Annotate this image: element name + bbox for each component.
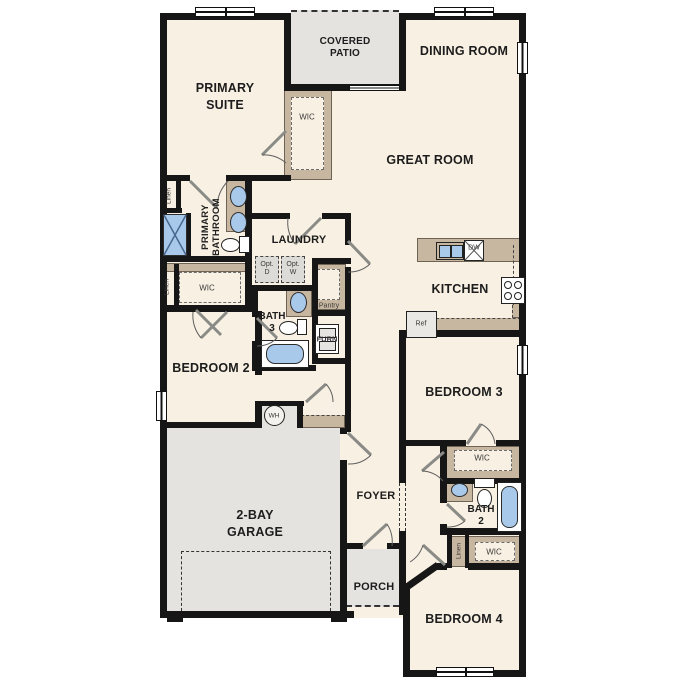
label-linen-bedroom4: Linen (456, 543, 463, 559)
window (156, 391, 167, 421)
garage-door-outline (181, 551, 331, 611)
floor-plan: COVEREDPATIO DINING ROOM PRIMARYSUITE GR… (0, 0, 687, 687)
window-divider (464, 7, 466, 17)
wall-segment (174, 264, 179, 305)
label-pantry: Pantry (319, 303, 339, 310)
window (517, 42, 528, 74)
wall-segment (496, 440, 526, 446)
room-label-primary-bathroom: PRIMARYBATHROOM (200, 198, 222, 256)
label-wic-primary2: WIC (199, 284, 215, 293)
bath3-toilet-tank (297, 319, 307, 335)
wall-segment (345, 213, 351, 245)
label-linen-1: Linen (166, 188, 173, 204)
room-label-garage: 2-BAYGARAGE (227, 507, 283, 541)
room-label-bath2: BATH2 (467, 504, 494, 528)
burner (514, 292, 522, 300)
primary-sink-1 (230, 186, 247, 207)
wall-segment (440, 446, 447, 503)
primary-wic-interior (291, 97, 324, 170)
label-furnace: FURN (317, 335, 338, 344)
label-wic-bedroom3: WIC (474, 454, 490, 463)
label-dishwasher: DW (468, 245, 480, 252)
room-label-porch: PORCH (354, 581, 395, 593)
burner (514, 281, 522, 289)
porch-area (346, 549, 399, 607)
room-label-bedroom2: BEDROOM 2 (172, 361, 250, 375)
bath3-sink (290, 292, 307, 313)
wall-segment (406, 440, 466, 446)
kitchen-sink-basin-2 (451, 245, 463, 258)
wall-segment (284, 13, 291, 91)
wall-segment (226, 175, 291, 181)
wall-segment (399, 13, 406, 91)
wall-segment (312, 258, 318, 316)
window-divider (225, 7, 227, 17)
bath3-tub-basin (266, 344, 304, 364)
wall-segment (345, 267, 351, 432)
double-window (434, 7, 494, 17)
kitchen-sink (436, 242, 464, 260)
label-opt-dryer: Opt.D (260, 261, 273, 277)
double-window (195, 7, 255, 17)
bath2-toilet-tank (474, 478, 495, 488)
label-refrigerator: Ref (416, 321, 427, 328)
room-label-bedroom4: BEDROOM 4 (425, 612, 503, 626)
primary-sink-2 (230, 212, 247, 233)
room-label-dining: DINING ROOM (420, 44, 508, 58)
wall-segment (160, 13, 167, 618)
primary-toilet-tank (239, 236, 250, 253)
burner (504, 281, 512, 289)
pantry-interior (317, 269, 340, 300)
wall-segment (167, 616, 183, 622)
room-label-great-room: GREAT ROOM (386, 153, 473, 167)
wall-segment (160, 256, 252, 262)
label-linen-2: Linen (164, 279, 171, 295)
wall-segment (252, 213, 290, 219)
primary-toilet-bowl (221, 238, 240, 252)
room-label-covered-patio: COVEREDPATIO (320, 36, 371, 60)
room-label-kitchen: KITCHEN (432, 282, 489, 296)
wall-segment (340, 428, 347, 434)
wall-segment (160, 208, 182, 213)
wall-segment (399, 330, 406, 445)
wall-segment (387, 543, 399, 549)
stove (501, 277, 525, 304)
wall-segment (252, 285, 314, 291)
label-opt-washer: Opt.W (286, 261, 299, 277)
room-label-laundry: LAUNDRY (272, 234, 327, 246)
wall-segment (176, 178, 181, 212)
room-label-foyer: FOYER (357, 490, 396, 502)
wall-segment (160, 422, 262, 428)
wall-segment (160, 175, 190, 181)
burner (504, 292, 512, 300)
wall-segment (399, 543, 406, 615)
window (517, 345, 528, 375)
sliding-door (349, 85, 400, 91)
wall-segment (347, 543, 363, 549)
shower (163, 214, 187, 256)
foyer-archway (399, 483, 406, 531)
double-window (436, 667, 494, 677)
bath2-tub-basin (501, 486, 518, 528)
wall-segment (399, 531, 406, 545)
label-water-heater: WH (269, 413, 280, 420)
room-label-bath3: BATH3 (258, 311, 285, 335)
room-label-primary-suite: PRIMARYSUITE (196, 80, 255, 114)
window-divider (465, 667, 467, 677)
room-label-bedroom3: BEDROOM 3 (425, 385, 503, 399)
wall-segment (468, 563, 526, 570)
wall-segment (437, 563, 447, 570)
bath2-sink (451, 483, 468, 497)
wall-segment (331, 616, 347, 622)
label-wic-primary: WIC (299, 113, 315, 122)
wall-segment (312, 358, 351, 364)
label-wic-bedroom4: WIC (486, 548, 502, 557)
wall-segment (399, 445, 406, 483)
wall-segment (340, 460, 347, 615)
wall-segment (160, 305, 255, 312)
wall-segment (297, 401, 303, 428)
wall-segment (447, 535, 452, 568)
wall-segment (160, 611, 354, 618)
kitchen-sink-basin-1 (439, 245, 451, 258)
coat-closet-shelf (301, 415, 345, 428)
